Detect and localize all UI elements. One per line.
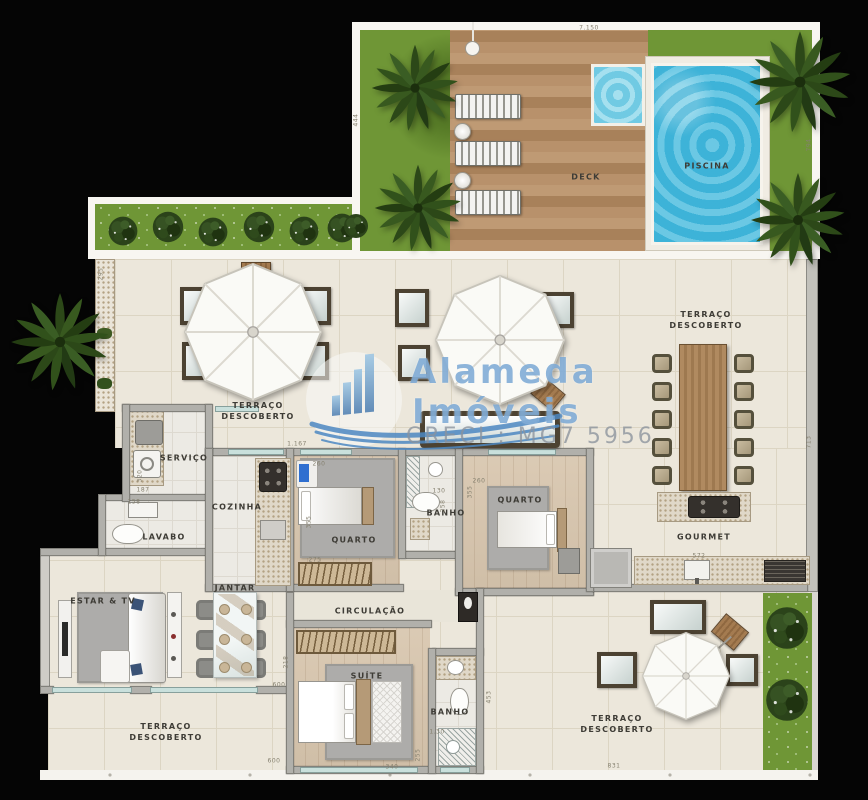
room-label-gourmet: GOURMET — [677, 532, 731, 543]
plate-icon — [241, 662, 252, 673]
dimension-label: 7.150 — [579, 25, 599, 32]
sofa-chaise — [100, 650, 130, 683]
room-label-jantar: JANTAR — [215, 583, 256, 594]
bush-icon — [105, 213, 141, 249]
room-label-estar-tv: ESTAR & TV — [70, 596, 136, 607]
plate-icon — [219, 662, 230, 673]
dimension-label: 187 — [137, 487, 150, 494]
dimension-label: 130 — [433, 488, 446, 495]
bed-headboard — [557, 508, 567, 552]
bed-pillow — [344, 684, 354, 710]
palm-tree-icon — [8, 290, 112, 394]
gourmet-chair — [652, 410, 672, 429]
cooktop-icon — [259, 462, 287, 492]
umbrella-icon — [432, 272, 568, 408]
sun-lounger — [455, 141, 521, 166]
dimension-label: 600 — [273, 682, 286, 689]
floor-plan: PISCINADECKTERRAÇO DESCOBERTOTERRAÇO DES… — [0, 0, 868, 800]
wardrobe — [298, 562, 372, 586]
dimension-label: 218 — [283, 656, 290, 669]
dimension-label: 453 — [486, 691, 493, 704]
wall — [205, 448, 213, 592]
bush-icon — [761, 602, 813, 654]
candle-icon — [171, 612, 176, 617]
window-glass — [300, 767, 418, 773]
plate-icon — [241, 604, 252, 615]
dimension-label: 794 — [806, 139, 813, 152]
cooktop-icon — [688, 496, 740, 518]
bath-cabinet — [410, 518, 430, 540]
window-glass — [150, 687, 258, 693]
dimension-label: 295 — [98, 268, 105, 281]
room-label-suite: SUÍTE — [351, 671, 384, 682]
plate-icon — [219, 604, 230, 615]
room-label-piscina: PISCINA — [684, 161, 729, 172]
wall — [398, 448, 406, 559]
window-glass — [300, 449, 352, 455]
dimension-label: 255 — [415, 749, 422, 762]
room-label-terraco-descoberto-inf-esq: TERRAÇO DESCOBERTO — [129, 721, 202, 743]
grill-icon — [764, 560, 806, 582]
hall-bowl-icon — [464, 597, 472, 609]
dimension-label: 831 — [608, 763, 621, 770]
candle-icon — [171, 634, 176, 639]
right-outer-wall — [806, 259, 818, 592]
dimension-label: 1.167 — [287, 441, 307, 448]
room-label-quarto-2: QUARTO — [497, 495, 542, 506]
terrace-chair — [395, 289, 429, 327]
tv-screen-icon — [299, 464, 309, 482]
dimension-label: 355 — [306, 516, 313, 529]
window-glass — [488, 449, 556, 455]
dimension-label: 1.30 — [429, 729, 444, 736]
wall — [122, 404, 212, 412]
umbrella-icon — [181, 260, 325, 404]
kitchen-sink — [260, 520, 286, 540]
outdoor-bench — [420, 411, 560, 448]
void-notch — [48, 448, 98, 548]
umbrella-icon — [640, 630, 732, 722]
bush-icon — [195, 214, 231, 250]
wall — [476, 588, 594, 596]
dimension-label: 355 — [467, 486, 474, 499]
dimension-label: 600 — [268, 758, 281, 765]
dimension-label: 713 — [806, 436, 813, 449]
sink-round-icon — [428, 462, 443, 477]
terrace-chair — [398, 345, 430, 381]
terrace-chair — [650, 600, 706, 634]
palm-tree-icon — [372, 162, 464, 254]
wall — [122, 404, 130, 502]
gourmet-chair — [652, 438, 672, 457]
palm-tree-icon — [369, 42, 461, 134]
outdoor-shower-icon — [465, 41, 480, 56]
plate-icon — [241, 634, 252, 645]
bush-icon — [240, 208, 278, 246]
dimension-label: 275 — [309, 557, 322, 564]
sink-oval-icon — [447, 660, 464, 675]
palm-tree-icon — [746, 28, 854, 136]
window-glass — [228, 449, 284, 455]
gourmet-cabinet — [590, 548, 632, 588]
shower-drain-icon — [446, 740, 460, 754]
bush-icon — [341, 211, 371, 241]
wall — [98, 494, 212, 501]
terrace-chair — [597, 652, 637, 688]
gourmet-chair — [734, 354, 754, 373]
dimension-label: 158 — [128, 499, 141, 506]
room-label-cozinha: COZINHA — [212, 502, 262, 513]
gourmet-chair — [734, 438, 754, 457]
palm-tree-icon — [748, 170, 848, 270]
bed-headboard — [356, 679, 371, 745]
sofa-pillow — [130, 663, 143, 676]
gourmet-dining-table — [679, 344, 727, 491]
dimension-label: 320 — [137, 470, 144, 483]
wall — [98, 494, 106, 556]
wardrobe — [296, 630, 396, 654]
gourmet-chair — [652, 466, 672, 485]
bedside-unit — [558, 548, 580, 574]
sink-icon — [684, 560, 710, 580]
room-label-banho-suite: BANHO — [431, 707, 470, 718]
room-label-lavabo: LAVABO — [142, 532, 185, 543]
wall — [455, 448, 463, 596]
room-label-circulacao: CIRCULAÇÃO — [335, 606, 406, 617]
dimension-label: 572 — [693, 553, 706, 560]
void-notch — [98, 448, 122, 494]
laundry-sink — [135, 420, 163, 445]
room-label-terraco-descoberto-inf-dir: TERRAÇO DESCOBERTO — [580, 713, 653, 735]
sun-lounger — [455, 94, 521, 119]
bush-icon — [149, 208, 187, 246]
gourmet-chair — [652, 382, 672, 401]
dimension-label: 444 — [353, 114, 360, 127]
living-left-wall — [40, 548, 50, 694]
bush-icon — [761, 674, 813, 726]
wall — [40, 548, 212, 556]
window-glass — [52, 687, 132, 693]
candle-icon — [171, 656, 176, 661]
faucet-icon — [695, 578, 699, 584]
dimension-label: 340 — [386, 764, 399, 771]
bed-foot-bench — [362, 487, 374, 525]
gourmet-chair — [734, 466, 754, 485]
bed-pillow — [344, 713, 354, 739]
wall — [286, 592, 294, 774]
dimension-label: 258 — [440, 500, 447, 513]
gourmet-chair — [734, 382, 754, 401]
bed-pillow — [546, 514, 555, 545]
room-label-terraco-descoberto-dir: TERRAÇO DESCOBERTO — [669, 309, 742, 331]
wall — [400, 551, 462, 559]
gourmet-chair — [734, 410, 754, 429]
window-glass — [440, 767, 470, 773]
bush-icon — [286, 213, 322, 249]
wall — [286, 620, 432, 628]
dimension-label: 260 — [473, 478, 486, 485]
gourmet-chair — [652, 354, 672, 373]
toilet-icon — [112, 524, 144, 544]
room-label-servico: SERVIÇO — [160, 453, 208, 464]
room-label-terraco-descoberto-esq: TERRAÇO DESCOBERTO — [221, 400, 294, 422]
room-label-deck: DECK — [571, 172, 600, 183]
sun-lounger — [455, 190, 521, 215]
quilted-panel — [372, 681, 402, 743]
tv-screen-icon — [62, 622, 68, 656]
plate-icon — [219, 634, 230, 645]
room-label-quarto-1: QUARTO — [331, 535, 376, 546]
dimension-label: 260 — [313, 461, 326, 468]
kiddie-pool — [591, 64, 645, 126]
wall — [130, 686, 152, 694]
